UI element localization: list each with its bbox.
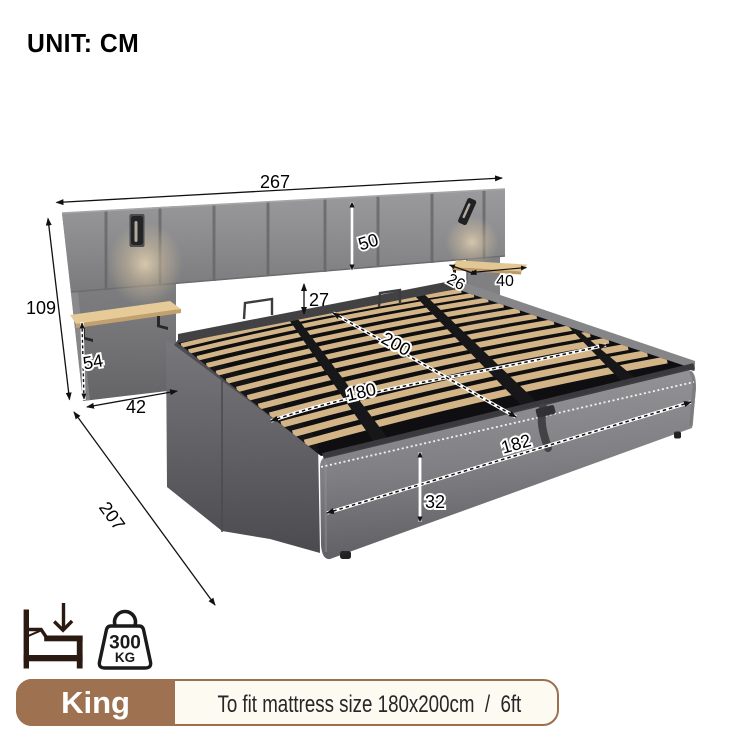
svg-text:40: 40 bbox=[496, 273, 514, 290]
svg-text:267: 267 bbox=[260, 172, 290, 192]
svg-text:KG: KG bbox=[115, 650, 135, 665]
svg-text:207: 207 bbox=[95, 498, 129, 534]
svg-text:109: 109 bbox=[26, 298, 56, 318]
svg-text:27: 27 bbox=[309, 290, 329, 310]
svg-text:32: 32 bbox=[425, 492, 445, 512]
svg-text:42: 42 bbox=[126, 397, 146, 417]
svg-text:54: 54 bbox=[81, 350, 104, 373]
